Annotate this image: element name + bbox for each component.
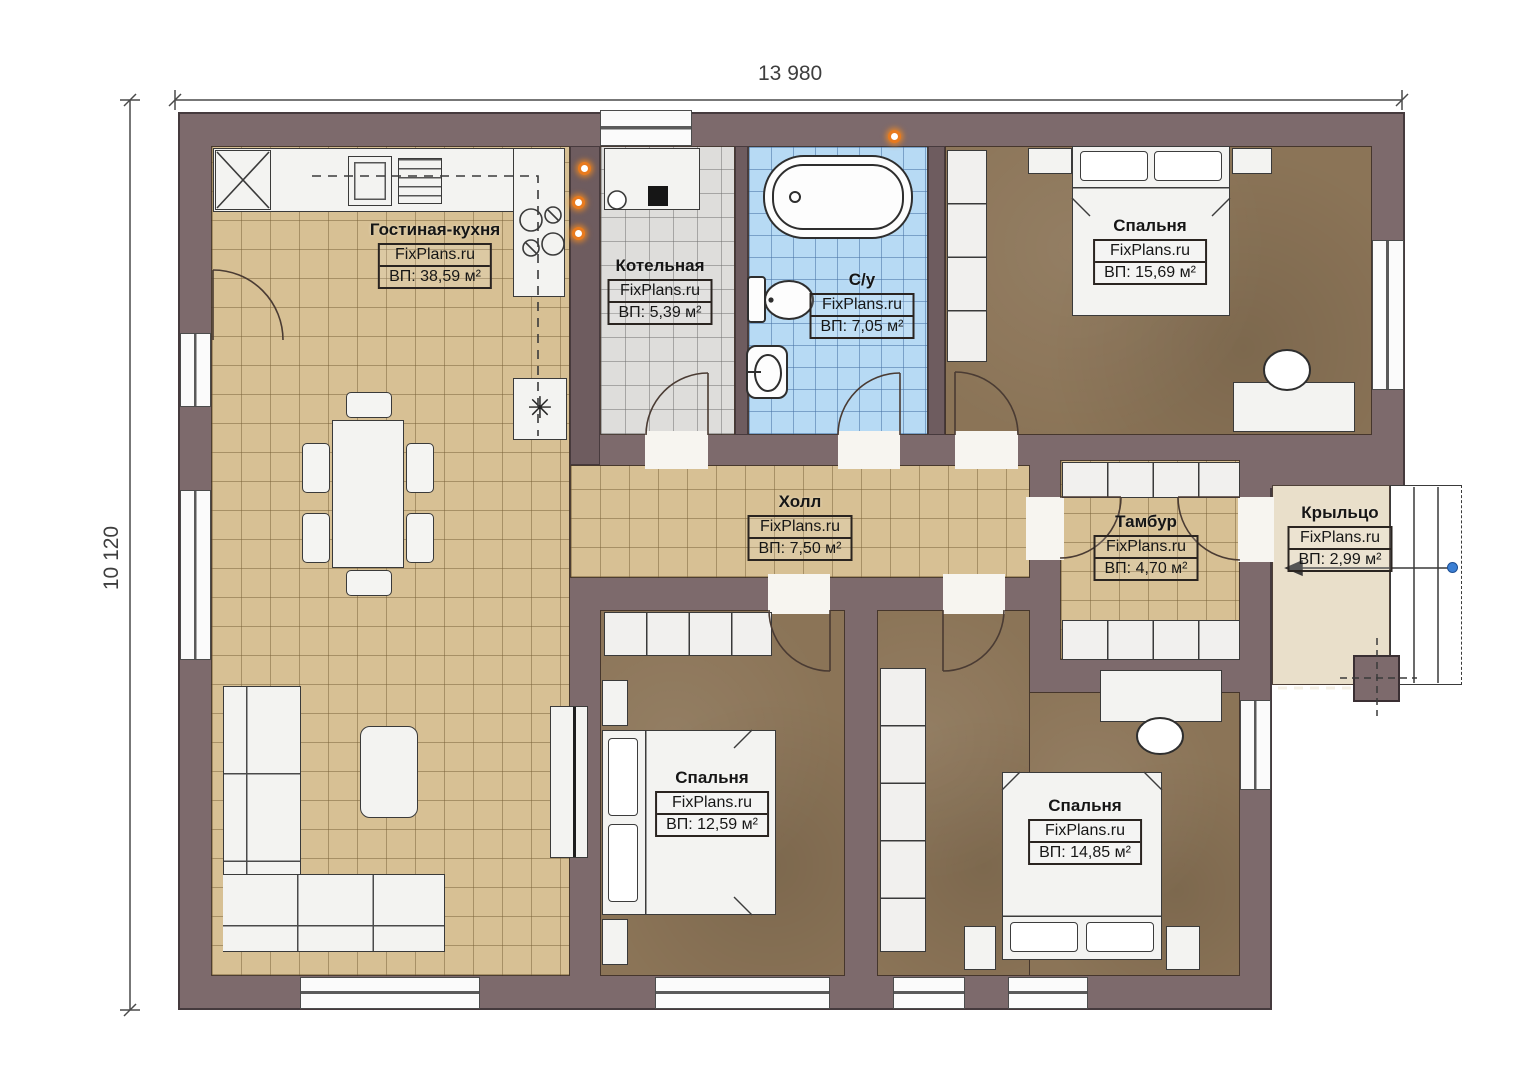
area-text: ВП: 14,85 м² — [1030, 843, 1140, 863]
wardrobe-bedroom-top-right — [947, 150, 987, 362]
door-opening-bathroom — [838, 431, 900, 469]
dimension-height-label: 10 120 — [100, 526, 124, 590]
brand-text: FixPlans.ru — [1096, 537, 1197, 559]
area-text: ВП: 4,70 м² — [1096, 559, 1197, 579]
wardrobe-bedroom-right — [880, 668, 926, 952]
tambour-wardrobe-bottom — [1062, 620, 1240, 660]
window-right-bedroom-bottom — [1240, 700, 1271, 790]
window-bottom-living — [300, 977, 480, 1009]
label-hall: Холл FixPlans.ru ВП: 7,50 м² — [748, 492, 853, 561]
brand-text: FixPlans.ru — [610, 281, 711, 303]
window-left-small — [180, 333, 211, 407]
desk-bedroom-top-right — [1233, 382, 1355, 432]
window-bottom-bedroom-right — [1008, 977, 1088, 1009]
kitchen-lower-cabinet: ✳ — [513, 378, 567, 440]
coffee-table — [360, 726, 418, 818]
pillow-br-2 — [1086, 922, 1154, 952]
dining-chair-right-2 — [406, 513, 434, 563]
vent-symbol: ✳ — [527, 394, 552, 424]
area-text: ВП: 7,05 м² — [812, 317, 913, 337]
brand-text: FixPlans.ru — [1030, 821, 1140, 843]
pillow-bm-1 — [608, 738, 638, 816]
dish-rack — [398, 158, 442, 204]
window-bottom-bedroom-right-small — [893, 977, 965, 1009]
utility-marker-3 — [572, 227, 585, 240]
wall-boiler-bathroom — [735, 146, 748, 435]
floor-plan: 13 980 10 120 ✳ — [0, 0, 1528, 1080]
window-bottom-bedroom-middle — [655, 977, 830, 1009]
brand-text: FixPlans.ru — [380, 245, 490, 267]
door-opening-bedroom-top-right — [955, 431, 1018, 469]
room-name: Тамбур — [1094, 512, 1199, 532]
nightstand-br-right — [1166, 926, 1200, 970]
door-opening-boiler — [645, 431, 708, 469]
desk-bedroom-right — [1100, 670, 1222, 722]
room-name: Спальня — [1093, 216, 1207, 236]
label-tambour: Тамбур FixPlans.ru ВП: 4,70 м² — [1094, 512, 1199, 581]
dining-table — [332, 420, 404, 568]
door-opening-tambour — [1026, 497, 1064, 560]
brand-text: FixPlans.ru — [657, 793, 767, 815]
fridge — [215, 150, 271, 210]
porch-column — [1353, 655, 1400, 702]
brand-text: FixPlans.ru — [1095, 241, 1205, 263]
tv-stand — [550, 706, 588, 858]
nightstand-tr-right — [1232, 148, 1272, 174]
door-opening-bedroom-middle — [768, 574, 830, 614]
room-name: С/у — [810, 270, 915, 290]
nightstand-bm-top — [602, 680, 628, 726]
drag-handle[interactable] — [1447, 562, 1458, 573]
wall-kitchen-boiler — [570, 146, 600, 465]
dining-chair-bottom — [346, 570, 392, 596]
area-text: ВП: 38,59 м² — [380, 267, 490, 287]
pillow-bm-2 — [608, 824, 638, 902]
room-name: Спальня — [1028, 796, 1142, 816]
area-text: ВП: 15,69 м² — [1095, 263, 1205, 283]
brand-text: FixPlans.ru — [1290, 528, 1391, 550]
dining-chair-top — [346, 392, 392, 418]
label-porch: Крыльцо FixPlans.ru ВП: 2,99 м² — [1288, 503, 1393, 572]
nightstand-bm-bottom — [602, 919, 628, 965]
wall-bathroom-bedroom — [928, 146, 945, 435]
kitchen-sink — [348, 156, 392, 206]
area-text: ВП: 12,59 м² — [657, 815, 767, 835]
dimension-width-label: 13 980 — [758, 62, 822, 86]
pillow-tr-1 — [1080, 151, 1148, 181]
kitchen-counter-right — [513, 148, 565, 297]
label-bedroom-bottom-middle: Спальня FixPlans.ru ВП: 12,59 м² — [655, 768, 769, 837]
dining-chair-left-2 — [302, 513, 330, 563]
pillow-tr-2 — [1154, 151, 1222, 181]
tambour-wardrobe-top — [1062, 462, 1240, 498]
boiler-unit — [648, 186, 668, 206]
brand-text: FixPlans.ru — [750, 517, 851, 539]
utility-marker-2 — [572, 196, 585, 209]
sofa-horizontal-section — [223, 874, 445, 952]
brand-text: FixPlans.ru — [812, 295, 913, 317]
label-living-kitchen: Гостиная-кухня FixPlans.ru ВП: 38,59 м² — [370, 220, 500, 289]
door-opening-bedroom-right — [943, 574, 1005, 614]
nightstand-br-left — [964, 926, 996, 970]
label-bedroom-bottom-right: Спальня FixPlans.ru ВП: 14,85 м² — [1028, 796, 1142, 865]
room-name: Крыльцо — [1288, 503, 1393, 523]
label-bathroom: С/у FixPlans.ru ВП: 7,05 м² — [810, 270, 915, 339]
window-right-bedroom-top — [1372, 240, 1404, 390]
door-opening-entrance — [1238, 497, 1274, 562]
nightstand-tr-left — [1028, 148, 1072, 174]
dining-chair-right-1 — [406, 443, 434, 493]
window-top-boiler — [600, 110, 692, 146]
room-name: Гостиная-кухня — [370, 220, 500, 240]
porch-steps — [1390, 485, 1462, 685]
pillow-br-1 — [1010, 922, 1078, 952]
room-name: Спальня — [655, 768, 769, 788]
utility-marker-1 — [578, 162, 591, 175]
room-name: Котельная — [608, 256, 713, 276]
room-name: Холл — [748, 492, 853, 512]
label-bedroom-top-right: Спальня FixPlans.ru ВП: 15,69 м² — [1093, 216, 1207, 285]
dining-chair-left-1 — [302, 443, 330, 493]
wardrobe-bedroom-middle — [604, 612, 772, 656]
label-boiler-room: Котельная FixPlans.ru ВП: 5,39 м² — [608, 256, 713, 325]
utility-marker-4 — [888, 130, 901, 143]
area-text: ВП: 7,50 м² — [750, 539, 851, 559]
area-text: ВП: 2,99 м² — [1290, 550, 1391, 570]
area-text: ВП: 5,39 м² — [610, 303, 711, 323]
window-left-large — [180, 490, 211, 660]
